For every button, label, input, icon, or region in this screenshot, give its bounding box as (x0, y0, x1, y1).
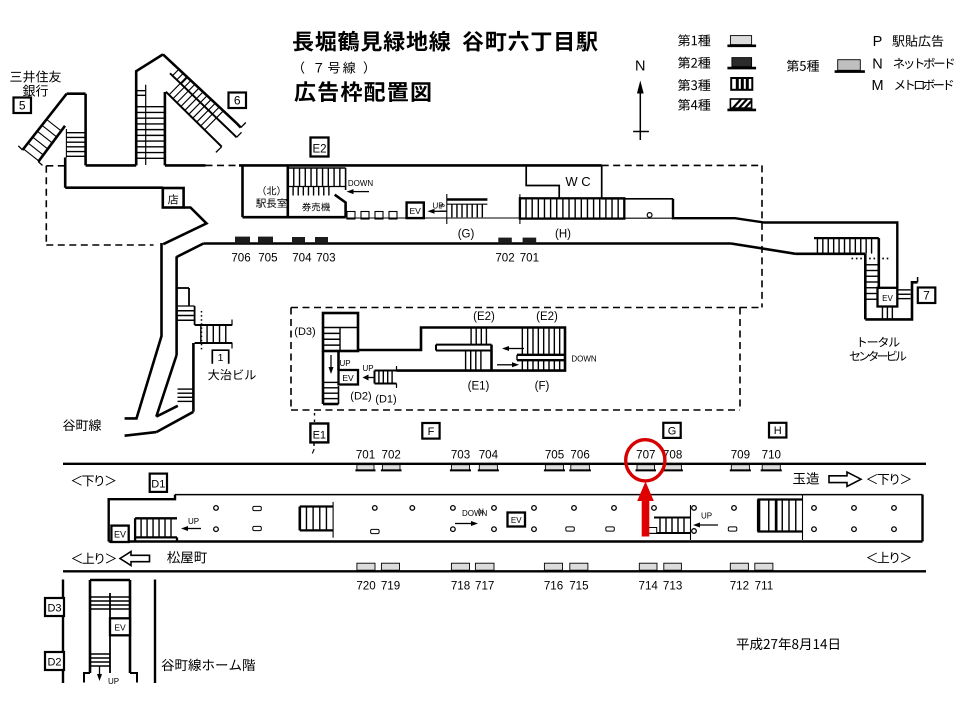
svg-text:7: 7 (923, 289, 930, 303)
svg-text:712: 712 (730, 580, 749, 593)
svg-text:716: 716 (544, 580, 563, 593)
svg-text:E2: E2 (312, 144, 326, 156)
svg-text:N: N (635, 59, 645, 75)
svg-text:P: P (873, 34, 883, 50)
svg-text:707: 707 (636, 448, 655, 461)
svg-text:(E1): (E1) (468, 381, 490, 393)
svg-text:UP: UP (188, 517, 199, 526)
svg-text:G: G (668, 425, 677, 437)
svg-text:DOWN: DOWN (462, 509, 488, 518)
svg-text:5: 5 (19, 99, 26, 113)
svg-text:703: 703 (316, 252, 335, 265)
svg-text:EV: EV (511, 516, 522, 525)
svg-text:(D1): (D1) (375, 394, 396, 406)
svg-text:711: 711 (755, 580, 773, 593)
svg-text:EV: EV (410, 206, 422, 216)
svg-text:704: 704 (479, 448, 499, 461)
svg-text:H: H (774, 425, 782, 437)
svg-text:D1: D1 (151, 479, 165, 491)
svg-text:EV: EV (114, 623, 126, 633)
svg-text:DOWN: DOWN (571, 355, 597, 364)
svg-text:(D2): (D2) (350, 391, 371, 403)
svg-text:719: 719 (381, 580, 400, 593)
svg-text:705: 705 (258, 252, 277, 265)
svg-text:720: 720 (356, 580, 375, 593)
svg-text:706: 706 (231, 252, 250, 265)
svg-text:(E2): (E2) (473, 311, 495, 323)
svg-text:704: 704 (292, 252, 312, 265)
svg-text:715: 715 (569, 580, 588, 593)
svg-text:709: 709 (731, 448, 750, 461)
svg-text:D2: D2 (47, 657, 61, 669)
svg-text:E1: E1 (313, 430, 326, 442)
svg-text:UP: UP (362, 364, 373, 373)
svg-text:M: M (871, 78, 883, 94)
svg-text:D3: D3 (47, 603, 61, 615)
svg-text:705: 705 (545, 448, 564, 461)
svg-text:710: 710 (762, 448, 781, 461)
svg-text:1: 1 (218, 352, 224, 364)
svg-text:UP: UP (108, 677, 119, 686)
svg-text:DOWN: DOWN (348, 179, 374, 188)
svg-text:UP: UP (701, 512, 712, 521)
svg-text:717: 717 (475, 580, 494, 593)
svg-text:706: 706 (570, 448, 589, 461)
svg-text:EV: EV (114, 530, 126, 540)
svg-text:F: F (428, 426, 435, 438)
svg-text:W C: W C (565, 174, 590, 189)
svg-text:702: 702 (382, 448, 401, 461)
svg-text:EV: EV (882, 294, 893, 303)
svg-text:713: 713 (663, 580, 682, 593)
svg-text:701: 701 (520, 252, 539, 265)
svg-text:N: N (872, 56, 882, 72)
svg-text:P: P (440, 202, 445, 211)
svg-text:703: 703 (451, 448, 470, 461)
svg-text:6: 6 (234, 94, 241, 108)
svg-text:(G): (G) (458, 229, 475, 241)
svg-text:(D3): (D3) (294, 326, 315, 338)
svg-text:(H): (H) (555, 229, 571, 241)
svg-text:714: 714 (639, 580, 659, 593)
svg-text:(E2): (E2) (536, 311, 558, 323)
svg-text:701: 701 (356, 448, 375, 461)
svg-text:UP: UP (339, 359, 350, 368)
svg-text:702: 702 (495, 252, 514, 265)
svg-text:EV: EV (342, 373, 354, 383)
svg-text:718: 718 (451, 580, 470, 593)
svg-text:(F): (F) (535, 381, 550, 393)
